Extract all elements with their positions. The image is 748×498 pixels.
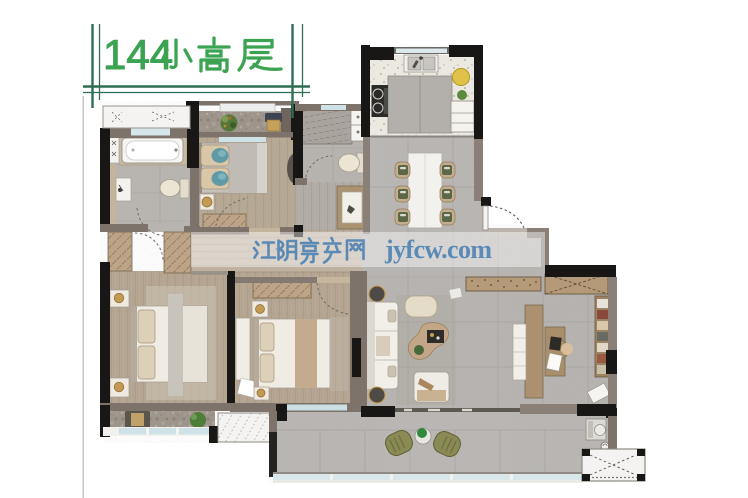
svg-text:144: 144	[103, 31, 173, 78]
svg-text:jyfcw.com: jyfcw.com	[384, 235, 492, 264]
